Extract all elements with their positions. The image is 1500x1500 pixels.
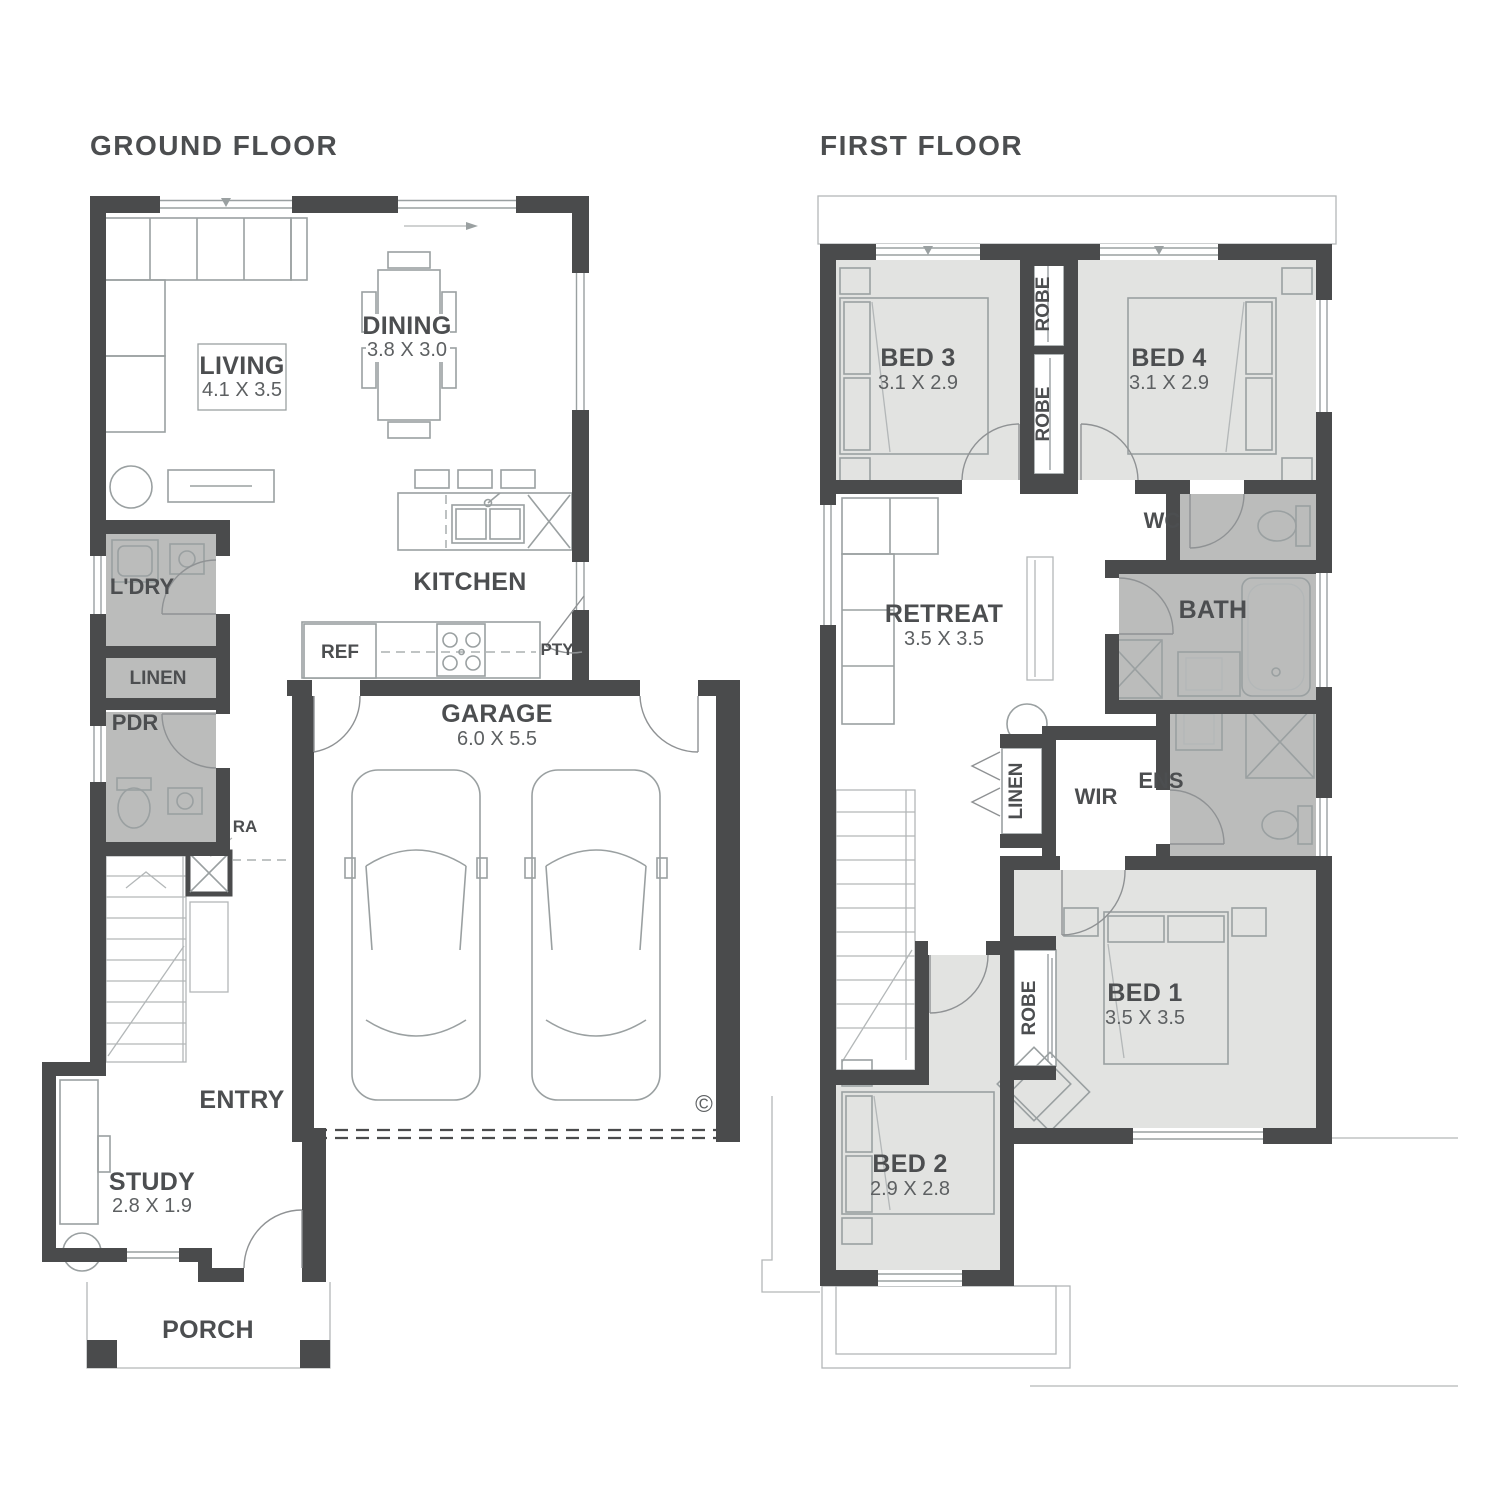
first-floor-title: FIRST FLOOR — [820, 130, 1023, 161]
return-air-duct — [188, 852, 230, 894]
ff-label-wc: WC — [1144, 508, 1181, 533]
car-icon — [525, 770, 667, 1100]
gf-dims-dining: 3.8 X 3.0 — [367, 339, 447, 361]
gf-dims-garage: 6.0 X 5.5 — [457, 728, 537, 750]
window — [1316, 798, 1332, 856]
ff-dims-bed3: 3.1 X 2.9 — [878, 372, 958, 394]
roof-outline — [818, 196, 1336, 244]
gf-label-entry: ENTRY — [199, 1086, 284, 1114]
garage-internal-door — [312, 680, 360, 752]
window — [572, 273, 589, 410]
gf-label-powder: PDR — [112, 710, 159, 735]
eave-outline — [762, 1096, 820, 1292]
floorplan-page: GROUND FLOOR LIVING 4.1 X 3.5 DINING 3.8… — [0, 0, 1500, 1500]
first-floor-plan: FIRST FLOOR BED 3 3.1 X 2.9 BED 4 3.1 X … — [762, 130, 1458, 1386]
ff-dims-bed1: 3.5 X 3.5 — [1105, 1007, 1185, 1029]
window — [160, 196, 292, 213]
gf-label-laundry: L'DRY — [110, 574, 175, 599]
window — [1133, 1128, 1263, 1144]
ground-floor-title: GROUND FLOOR — [90, 130, 338, 161]
garage-rear-door — [640, 680, 698, 752]
side-table — [110, 466, 152, 508]
study-desk — [60, 1080, 110, 1224]
ff-label-bed3: BED 3 — [880, 344, 955, 372]
window — [1100, 244, 1218, 260]
window — [820, 505, 836, 625]
staircase — [836, 790, 915, 1070]
ff-dims-bed4: 3.1 X 2.9 — [1129, 372, 1209, 394]
staircase — [106, 856, 186, 1062]
window — [572, 562, 589, 610]
kitchen-island — [398, 493, 572, 550]
gf-label-return-air: RA — [233, 817, 258, 836]
hall-cupboard — [190, 902, 228, 992]
balcony-outline — [822, 1286, 1070, 1368]
copyright-mark: © — [695, 1091, 713, 1118]
sliding-door — [398, 196, 516, 230]
window — [876, 244, 980, 260]
ff-label-linen: LINEN — [1006, 763, 1027, 820]
window — [127, 1248, 179, 1262]
front-door — [244, 1210, 302, 1282]
ff-label-bed2: BED 2 — [872, 1150, 947, 1178]
window — [1316, 573, 1332, 687]
window — [90, 556, 106, 614]
window — [1316, 300, 1332, 412]
gf-label-garage: GARAGE — [441, 700, 553, 728]
gf-label-porch: PORCH — [162, 1316, 254, 1344]
porch-post — [300, 1340, 330, 1368]
gf-label-dining: DINING — [362, 312, 451, 340]
ff-label-wir: WIR — [1075, 784, 1118, 809]
floorplan-drawing: GROUND FLOOR LIVING 4.1 X 3.5 DINING 3.8… — [0, 0, 1500, 1500]
gf-label-linen: LINEN — [130, 668, 187, 689]
ff-label-bath: BATH — [1179, 596, 1248, 624]
ff-label-robe-bed4: ROBE — [1033, 387, 1054, 442]
ff-label-bed1: BED 1 — [1107, 979, 1182, 1007]
gf-label-living: LIVING — [199, 352, 284, 380]
tv-unit — [1027, 557, 1053, 680]
ff-label-retreat: RETREAT — [885, 600, 1003, 628]
ff-dims-retreat: 3.5 X 3.5 — [904, 628, 984, 650]
ground-floor-plan: GROUND FLOOR LIVING 4.1 X 3.5 DINING 3.8… — [42, 130, 740, 1368]
gf-label-kitchen: KITCHEN — [413, 568, 526, 596]
gf-dims-study: 2.8 X 1.9 — [112, 1195, 192, 1217]
porch-post — [87, 1340, 117, 1368]
ff-label-ens: ENS — [1138, 768, 1183, 793]
ff-label-bed4: BED 4 — [1131, 344, 1206, 372]
car-icon — [345, 770, 487, 1100]
window — [878, 1270, 962, 1286]
ff-label-robe-bed3: ROBE — [1033, 277, 1054, 332]
gf-label-pantry: PTY — [540, 640, 574, 659]
console-table — [168, 470, 274, 502]
bath-area — [1105, 574, 1316, 700]
gf-dims-living: 4.1 X 3.5 — [202, 379, 282, 401]
gf-label-study: STUDY — [109, 1168, 195, 1196]
window — [90, 726, 106, 782]
bar-stools — [415, 470, 535, 488]
gf-label-fridge: REF — [321, 642, 359, 663]
ff-label-robe-bed1: ROBE — [1019, 981, 1040, 1036]
ff-dims-bed2: 2.9 X 2.8 — [870, 1178, 950, 1200]
